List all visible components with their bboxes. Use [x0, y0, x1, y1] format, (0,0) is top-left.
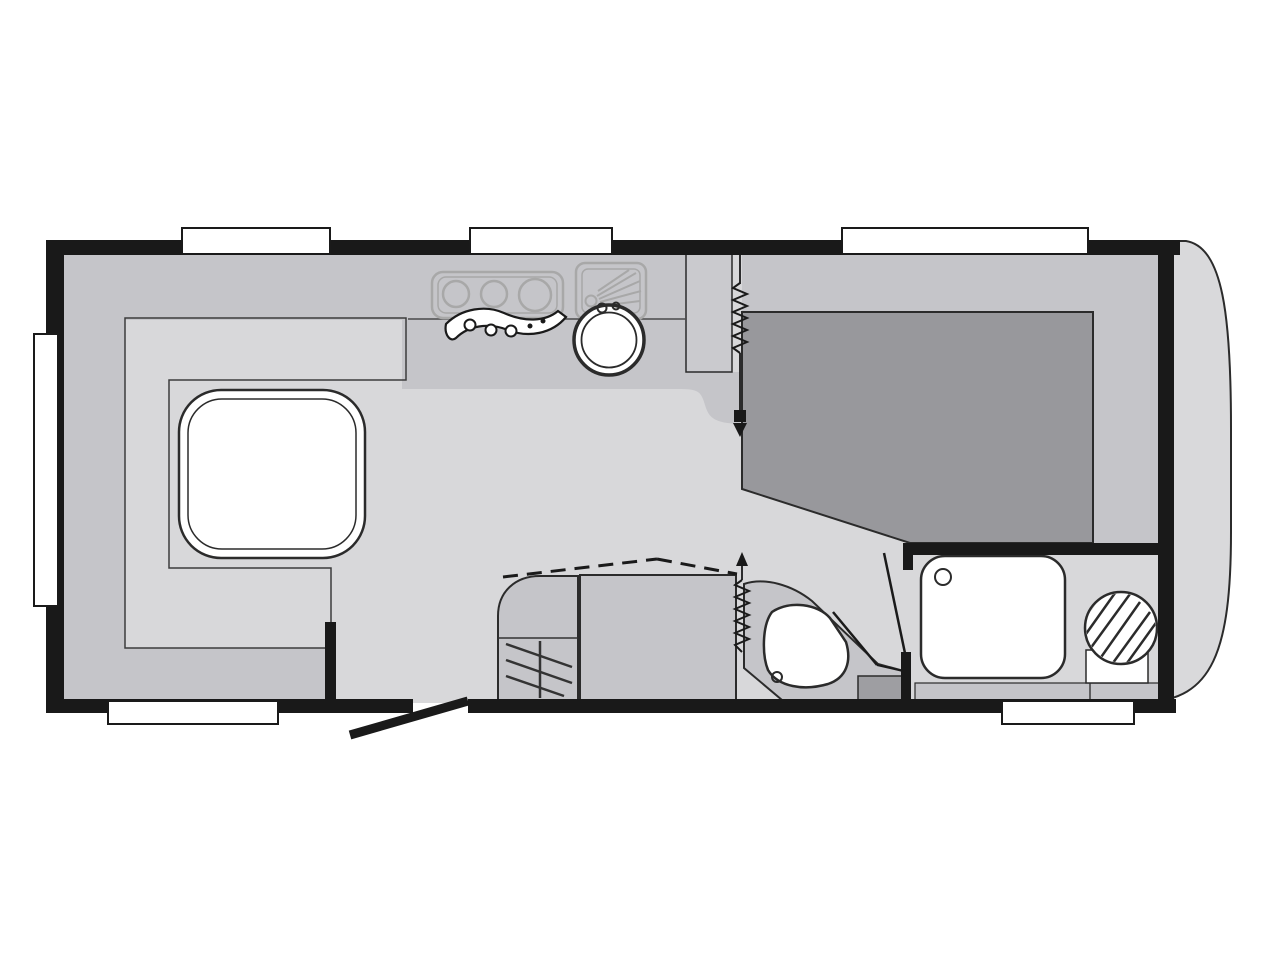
window-bottom-right [1002, 701, 1134, 724]
window-top-right [842, 228, 1088, 254]
window-top-left [182, 228, 330, 254]
dinette-table [179, 390, 365, 558]
seating-end-wall-stub [325, 622, 336, 702]
lounge-sideboard-bottom [64, 648, 336, 700]
bathroom-cabinet-strip [915, 683, 1160, 701]
vanity-low-cabinet [858, 676, 904, 700]
caravan-floorplan-page: { "diagram": { "type": "caravan-floor-pl… [0, 0, 1280, 960]
floorplan-drawing [0, 0, 1280, 960]
window-left [34, 334, 58, 606]
wall-right [1158, 240, 1174, 713]
bathroom-wall-top [903, 543, 1165, 555]
kitchen-tall-cabinet [686, 250, 732, 372]
kitchen-sink-icon [574, 303, 644, 376]
lounge-sideboard-left [64, 318, 125, 650]
bathroom-wall-stub-upper [903, 543, 913, 570]
bed-head-shelf [742, 255, 1160, 313]
bathroom-wall-stub-lower [901, 652, 911, 702]
bed-side-shelf [1093, 312, 1160, 544]
wardrobe [580, 575, 736, 700]
window-top-middle [470, 228, 612, 254]
window-bottom-left [108, 701, 278, 724]
shower-tray-icon [921, 556, 1065, 678]
